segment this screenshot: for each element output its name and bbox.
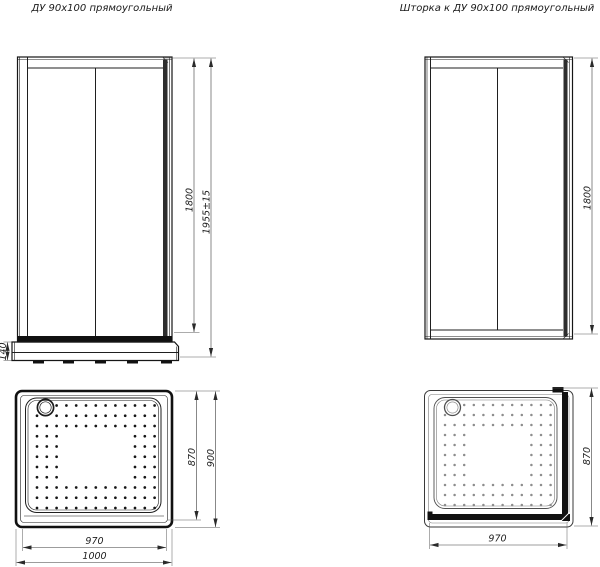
anti-slip-dot: [501, 414, 504, 417]
anti-slip-dot: [549, 444, 552, 447]
tray-plan-left: 870 900 970 1000: [16, 391, 220, 566]
anti-slip-dot: [511, 484, 514, 487]
dim-label-970-right: 970: [488, 534, 506, 545]
anti-slip-dot: [482, 504, 485, 507]
anti-slip-dot: [75, 425, 78, 428]
anti-slip-dot: [540, 484, 543, 487]
anti-slip-dot: [55, 425, 58, 428]
anti-slip-dot: [521, 504, 524, 507]
anti-slip-dot: [540, 474, 543, 477]
anti-slip-dot: [124, 496, 127, 499]
anti-slip-dot: [104, 404, 107, 407]
anti-slip-dot: [75, 507, 78, 510]
anti-slip-dot: [463, 494, 466, 497]
anti-slip-dot: [482, 494, 485, 497]
anti-slip-dot: [530, 474, 533, 477]
anti-slip-dot: [143, 435, 146, 438]
anti-slip-dot: [549, 434, 552, 437]
anti-slip-dot: [114, 404, 117, 407]
anti-slip-dot: [444, 474, 447, 477]
anti-slip-dot: [444, 504, 447, 507]
anti-slip-dot: [511, 504, 514, 507]
anti-slip-dot: [55, 466, 58, 469]
anti-slip-dot: [114, 507, 117, 510]
anti-slip-dot: [45, 455, 48, 458]
drawing-canvas: ДУ 90x100 прямоугольный Шторка к ДУ 90x1…: [0, 0, 600, 567]
anti-slip-dot: [104, 414, 107, 417]
anti-slip-dot: [540, 424, 543, 427]
anti-slip-dot: [104, 486, 107, 489]
anti-slip-dot: [473, 414, 476, 417]
anti-slip-dot: [530, 454, 533, 457]
anti-slip-dot: [143, 455, 146, 458]
title-door-front: ДУ 90x100 прямоугольный: [30, 3, 173, 14]
screen-frame: [425, 57, 573, 339]
anti-slip-dot: [501, 504, 504, 507]
anti-slip-dot: [134, 455, 137, 458]
anti-slip-dot: [453, 504, 456, 507]
anti-slip-dot: [94, 496, 97, 499]
anti-slip-dot: [549, 484, 552, 487]
anti-slip-dot: [124, 414, 127, 417]
anti-slip-dot: [540, 464, 543, 467]
anti-slip-dot: [453, 444, 456, 447]
dim-label-970-left: 970: [85, 536, 103, 547]
anti-slip-dot: [473, 504, 476, 507]
tray-right-outer-rim: [425, 391, 574, 528]
anti-slip-dot: [94, 507, 97, 510]
dim-label-1955: 1955±15: [202, 190, 213, 234]
anti-slip-dot: [530, 434, 533, 437]
anti-slip-dot: [124, 486, 127, 489]
anti-slip-dot: [45, 445, 48, 448]
anti-slip-dot: [530, 504, 533, 507]
anti-slip-dot: [521, 414, 524, 417]
anti-slip-dot: [549, 464, 552, 467]
anti-slip-dot: [45, 476, 48, 479]
anti-slip-dot: [55, 455, 58, 458]
anti-slip-dot: [114, 414, 117, 417]
dim-tray-height: 140: [0, 342, 12, 361]
anti-slip-dot: [473, 484, 476, 487]
anti-slip-dot: [453, 494, 456, 497]
anti-slip-dot: [530, 414, 533, 417]
anti-slip-dot: [482, 484, 485, 487]
anti-slip-dot: [45, 466, 48, 469]
anti-slip-dot: [501, 484, 504, 487]
anti-slip-dot: [453, 464, 456, 467]
anti-slip-dot: [134, 404, 137, 407]
dim-label-870-left: 870: [187, 448, 198, 466]
anti-slip-dot: [511, 494, 514, 497]
anti-slip-dot: [153, 466, 156, 469]
anti-slip-dot: [530, 494, 533, 497]
anti-slip-dot: [94, 425, 97, 428]
anti-slip-dot: [143, 486, 146, 489]
dim-tray-left-widths: 970 1000: [16, 529, 172, 566]
anti-slip-dot: [540, 494, 543, 497]
anti-slip-dot: [75, 404, 78, 407]
door-frame: [18, 57, 173, 342]
anti-slip-dot: [444, 434, 447, 437]
anti-slip-dot: [36, 496, 39, 499]
anti-slip-dot: [153, 414, 156, 417]
anti-slip-dot: [463, 464, 466, 467]
anti-slip-dot: [134, 466, 137, 469]
anti-slip-dot: [45, 496, 48, 499]
anti-slip-dot: [453, 484, 456, 487]
anti-slip-dot: [444, 424, 447, 427]
anti-slip-dot: [143, 445, 146, 448]
anti-slip-dot: [444, 414, 447, 417]
anti-slip-dot: [473, 424, 476, 427]
anti-slip-dot: [549, 454, 552, 457]
anti-slip-dot: [482, 404, 485, 407]
dim-label-900: 900: [206, 449, 217, 467]
anti-slip-dot: [153, 496, 156, 499]
anti-slip-dot: [85, 486, 88, 489]
anti-slip-dot: [85, 404, 88, 407]
anti-slip-dot: [521, 424, 524, 427]
anti-slip-dot: [85, 496, 88, 499]
anti-slip-dot: [444, 494, 447, 497]
anti-slip-dot: [153, 507, 156, 510]
anti-slip-dot: [549, 414, 552, 417]
anti-slip-dot: [134, 425, 137, 428]
anti-slip-dot: [94, 414, 97, 417]
anti-slip-dot: [36, 414, 39, 417]
dim-tray-left-depths: 870 900: [168, 391, 220, 528]
anti-slip-dot: [540, 404, 543, 407]
anti-slip-dot: [36, 425, 39, 428]
anti-slip-dot: [65, 496, 68, 499]
anti-slip-dot: [540, 444, 543, 447]
anti-slip-dot: [463, 474, 466, 477]
door-bottom-rail: [18, 336, 173, 342]
anti-slip-dot: [55, 486, 58, 489]
anti-slip-dot: [492, 494, 495, 497]
anti-slip-dot: [143, 466, 146, 469]
anti-slip-dot: [36, 476, 39, 479]
anti-slip-dot: [453, 454, 456, 457]
tray-left-outer-rim: [16, 391, 172, 527]
anti-slip-dot: [463, 504, 466, 507]
anti-slip-dot: [55, 507, 58, 510]
anti-slip-dot: [143, 414, 146, 417]
anti-slip-dot: [153, 445, 156, 448]
anti-slip-dot: [463, 414, 466, 417]
anti-slip-dot: [530, 484, 533, 487]
dim-label-870-right: 870: [582, 447, 593, 465]
anti-slip-dot: [65, 486, 68, 489]
anti-slip-dot: [492, 504, 495, 507]
anti-slip-dot: [114, 486, 117, 489]
anti-slip-dot: [45, 486, 48, 489]
anti-slip-dot: [134, 414, 137, 417]
anti-slip-dot: [36, 507, 39, 510]
anti-slip-dot: [549, 424, 552, 427]
anti-slip-dot: [153, 476, 156, 479]
anti-slip-dot: [134, 496, 137, 499]
anti-slip-dot: [114, 496, 117, 499]
anti-slip-dot: [463, 454, 466, 457]
anti-slip-dot: [153, 425, 156, 428]
anti-slip-dot: [134, 445, 137, 448]
anti-slip-dot: [94, 486, 97, 489]
dim-label-140: 140: [0, 342, 9, 360]
anti-slip-dot: [104, 507, 107, 510]
anti-slip-dot: [521, 404, 524, 407]
anti-slip-dot: [75, 414, 78, 417]
tray-plan-right: 870 970: [425, 387, 599, 549]
anti-slip-dot: [501, 424, 504, 427]
anti-slip-dot: [530, 404, 533, 407]
anti-slip-dot: [482, 424, 485, 427]
anti-slip-dot: [65, 404, 68, 407]
anti-slip-dot: [501, 404, 504, 407]
anti-slip-dot: [444, 444, 447, 447]
anti-slip-dot: [453, 424, 456, 427]
anti-slip-dot: [143, 404, 146, 407]
anti-slip-dot: [114, 425, 117, 428]
anti-slip-dot: [55, 445, 58, 448]
anti-slip-dot: [153, 455, 156, 458]
anti-slip-dot: [36, 445, 39, 448]
anti-slip-dot: [530, 444, 533, 447]
anti-slip-dot: [45, 425, 48, 428]
anti-slip-dot: [55, 476, 58, 479]
anti-slip-dot: [65, 425, 68, 428]
anti-slip-dot: [85, 507, 88, 510]
anti-slip-dot: [134, 476, 137, 479]
anti-slip-dot: [521, 484, 524, 487]
anti-slip-dot: [492, 414, 495, 417]
anti-slip-dot: [75, 496, 78, 499]
anti-slip-dot: [444, 454, 447, 457]
anti-slip-dot: [463, 444, 466, 447]
anti-slip-dot: [134, 507, 137, 510]
anti-slip-dot: [85, 414, 88, 417]
anti-slip-dot: [153, 404, 156, 407]
anti-slip-dot: [492, 484, 495, 487]
anti-slip-dot: [473, 494, 476, 497]
anti-slip-dot: [143, 507, 146, 510]
anti-slip-dot: [36, 435, 39, 438]
anti-slip-dot: [94, 404, 97, 407]
anti-slip-dot: [55, 414, 58, 417]
dim-screen-height: 1800: [574, 58, 598, 334]
anti-slip-dot: [453, 434, 456, 437]
anti-slip-dot: [482, 414, 485, 417]
anti-slip-dot: [549, 474, 552, 477]
anti-slip-dot: [549, 494, 552, 497]
screen-right-profile: [564, 60, 568, 337]
anti-slip-dot: [65, 414, 68, 417]
dim-label-1800-door: 1800: [185, 188, 196, 212]
anti-slip-dot: [463, 434, 466, 437]
anti-slip-dot: [36, 466, 39, 469]
anti-slip-dot: [153, 486, 156, 489]
anti-slip-dot: [511, 424, 514, 427]
anti-slip-dot: [143, 476, 146, 479]
anti-slip-dot: [463, 484, 466, 487]
anti-slip-dot: [540, 434, 543, 437]
dim-label-1000: 1000: [82, 551, 106, 562]
anti-slip-dot: [540, 414, 543, 417]
anti-slip-dot: [492, 404, 495, 407]
anti-slip-dot: [124, 404, 127, 407]
anti-slip-dot: [501, 494, 504, 497]
title-screen-side: Шторка к ДУ 90x100 прямоугольный: [400, 3, 595, 14]
anti-slip-dot: [511, 404, 514, 407]
anti-slip-dot: [444, 484, 447, 487]
anti-slip-dot: [55, 404, 58, 407]
dim-label-1800-screen: 1800: [583, 186, 594, 210]
anti-slip-dot: [492, 424, 495, 427]
anti-slip-dot: [143, 496, 146, 499]
anti-slip-dot: [36, 486, 39, 489]
anti-slip-dot: [549, 404, 552, 407]
anti-slip-dot: [75, 486, 78, 489]
anti-slip-dot: [55, 435, 58, 438]
anti-slip-dot: [134, 486, 137, 489]
anti-slip-dot: [444, 464, 447, 467]
anti-slip-dot: [463, 424, 466, 427]
anti-slip-dot: [124, 425, 127, 428]
anti-slip-dot: [549, 504, 552, 507]
anti-slip-dot: [143, 425, 146, 428]
anti-slip-dot: [540, 504, 543, 507]
anti-slip-dot: [153, 435, 156, 438]
anti-slip-dot: [530, 424, 533, 427]
screen-side-view: 1800: [425, 57, 598, 339]
anti-slip-dot: [463, 404, 466, 407]
tray-base: [12, 342, 179, 361]
anti-slip-dot: [453, 474, 456, 477]
anti-slip-dot: [45, 507, 48, 510]
anti-slip-dot: [473, 404, 476, 407]
anti-slip-dot: [134, 435, 137, 438]
door-front-view: 140 1800 1955±15: [0, 57, 216, 364]
technical-drawing: ДУ 90x100 прямоугольный Шторка к ДУ 90x1…: [0, 0, 600, 567]
anti-slip-dot: [45, 435, 48, 438]
anti-slip-dot: [124, 507, 127, 510]
anti-slip-dot: [511, 414, 514, 417]
anti-slip-dot: [521, 494, 524, 497]
door-right-profile: [163, 60, 168, 339]
anti-slip-dot: [65, 507, 68, 510]
anti-slip-dot: [85, 425, 88, 428]
anti-slip-dot: [104, 425, 107, 428]
anti-slip-dot: [540, 454, 543, 457]
anti-slip-dot: [36, 455, 39, 458]
anti-slip-dot: [55, 496, 58, 499]
anti-slip-dot: [104, 496, 107, 499]
anti-slip-dot: [530, 464, 533, 467]
